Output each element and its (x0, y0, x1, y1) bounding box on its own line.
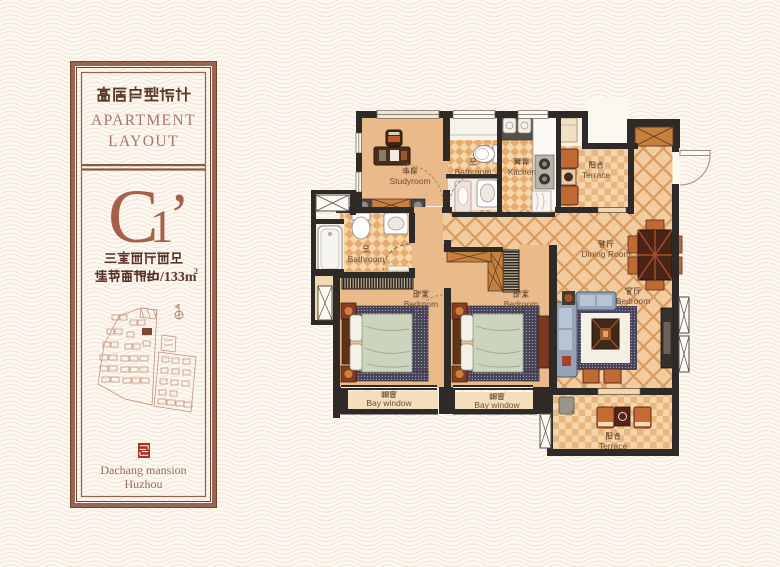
svg-text:Terrace: Terrace (582, 170, 611, 180)
svg-text:Huzhou: Huzhou (125, 477, 163, 491)
svg-text:Bedroom: Bedroom (504, 299, 539, 309)
svg-text:Dining Room: Dining Room (581, 249, 630, 259)
svg-text:Bay window: Bay window (474, 400, 520, 410)
svg-text:APARTMENT: APARTMENT (91, 112, 196, 129)
svg-text:Kitchen: Kitchen (508, 167, 537, 177)
svg-text:Bay window: Bay window (366, 398, 412, 408)
svg-text:Bathroom: Bathroom (348, 254, 385, 264)
svg-text:LAYOUT: LAYOUT (108, 133, 179, 150)
svg-text:/133m: /133m (159, 270, 197, 285)
svg-text:Bathroom: Bathroom (455, 167, 492, 177)
svg-text:Bedroom: Bedroom (616, 296, 651, 306)
svg-text:Bedroom: Bedroom (404, 299, 439, 309)
svg-text:’: ’ (169, 182, 190, 250)
svg-text:2: 2 (194, 267, 198, 276)
svg-text:Studyroom: Studyroom (389, 176, 430, 186)
svg-text:Dachang mansion: Dachang mansion (100, 463, 186, 477)
svg-text:Terrace: Terrace (599, 441, 628, 451)
